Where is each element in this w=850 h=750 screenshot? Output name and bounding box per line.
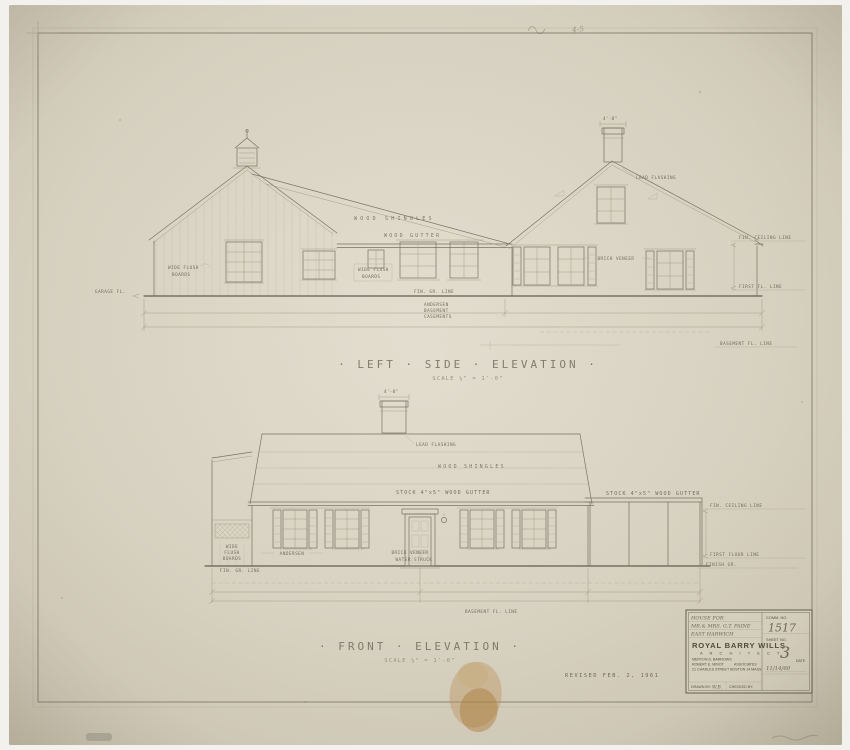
blueprint-sheet-svg: WIDE FLUSH BOARDS WOOD SHINGLES WOOD GUT… bbox=[0, 0, 850, 750]
pencil-scribble: 4-5 bbox=[571, 24, 585, 34]
edge-smudge bbox=[86, 733, 112, 741]
drawing-photo: WIDE FLUSH BOARDS WOOD SHINGLES WOOD GUT… bbox=[0, 0, 850, 750]
vignette-overlay bbox=[9, 5, 842, 745]
